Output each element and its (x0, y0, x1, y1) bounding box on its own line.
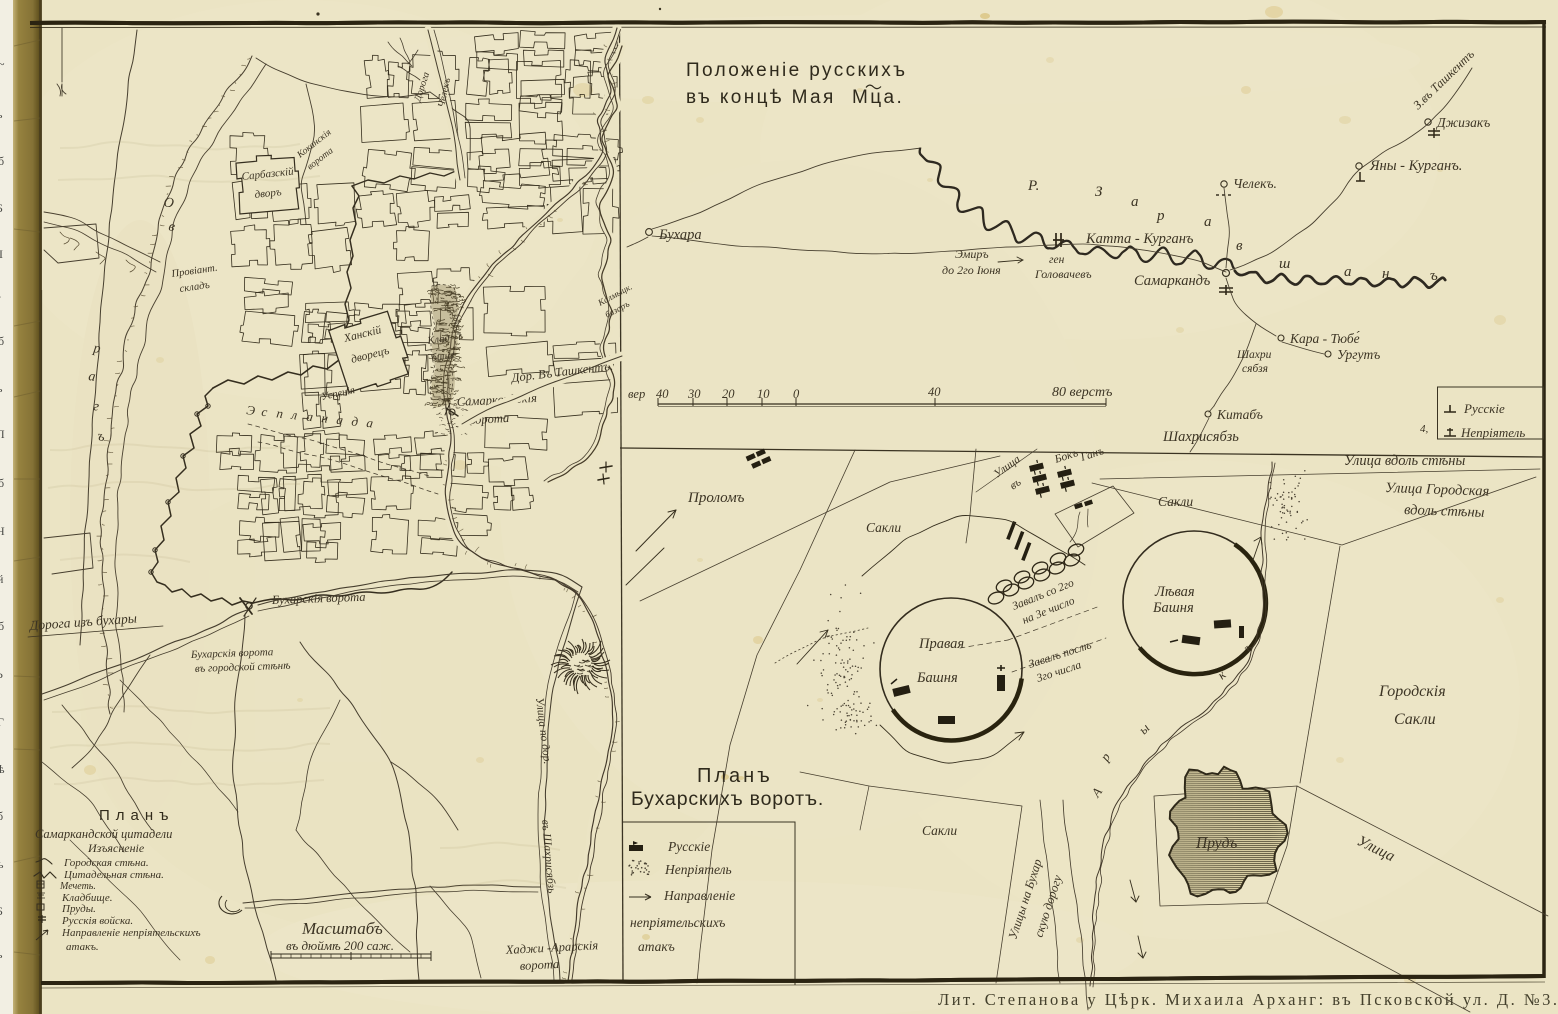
svg-text:ворота: ворота (519, 957, 559, 973)
svg-text:Р.: Р. (1027, 178, 1039, 194)
svg-text:Городскія: Городскія (1378, 683, 1446, 700)
svg-text:0: 0 (793, 387, 800, 401)
svg-text:Самаркандъ: Самаркандъ (1134, 273, 1211, 289)
svg-text:Шахрисябзь: Шахрисябзь (1162, 429, 1239, 445)
svg-text:Шахри: Шахри (1236, 349, 1272, 361)
svg-text:40: 40 (928, 385, 941, 399)
svg-text:до 2го Іюня: до 2го Іюня (942, 263, 1001, 277)
svg-text:р: р (1156, 208, 1165, 224)
svg-text:Планъ: Планъ (99, 807, 175, 824)
svg-text:З: З (1095, 184, 1103, 200)
svg-text:Б: Б (0, 201, 3, 215)
svg-text:Мца.: Мца. (852, 87, 904, 108)
svg-text:~: ~ (0, 57, 5, 71)
svg-text:20: 20 (722, 387, 735, 401)
svg-text:атакъ.: атакъ. (66, 941, 99, 953)
svg-text:30: 30 (687, 387, 701, 401)
svg-text:б: б (0, 154, 4, 168)
svg-text:Катта - Курганъ: Катта - Курганъ (1085, 231, 1194, 247)
svg-text:Направленіе непріятельскихъ: Направленіе непріятельскихъ (61, 927, 201, 939)
svg-text:Челекъ.: Челекъ. (1233, 176, 1277, 191)
svg-text:Сакли: Сакли (866, 520, 901, 535)
svg-text:Цитадельная стѣна.: Цитадельная стѣна. (63, 869, 164, 881)
svg-text:Головачевъ: Головачевъ (1034, 267, 1092, 281)
svg-text:Ургутъ: Ургутъ (1337, 347, 1380, 362)
svg-text:Прудъ: Прудъ (1195, 835, 1237, 852)
svg-text:Яны - Курганъ.: Яны - Курганъ. (1369, 158, 1462, 174)
svg-text:Башня: Башня (916, 670, 958, 686)
svg-text:ѣ: ѣ (0, 762, 5, 776)
svg-text:І: І (0, 247, 3, 261)
svg-text:Проломъ: Проломъ (687, 490, 745, 506)
svg-text:въ дюймѣ 200 саж.: въ дюймѣ 200 саж. (286, 938, 394, 953)
svg-text:а: а (1344, 264, 1352, 280)
svg-text:Правая: Правая (918, 636, 964, 652)
svg-text:-: - (0, 289, 1, 303)
svg-text:й: й (0, 572, 4, 586)
svg-text:Масштабъ: Масштабъ (301, 919, 383, 938)
svg-text:Городская стѣна.: Городская стѣна. (63, 857, 149, 869)
svg-text:П: П (0, 427, 5, 441)
svg-text:Пруды.: Пруды. (61, 903, 96, 915)
svg-text:вер: вер (628, 387, 645, 401)
svg-text:б: б (0, 334, 4, 348)
svg-text:атакъ: атакъ (638, 939, 675, 954)
svg-text:10: 10 (757, 387, 770, 401)
svg-text:в: в (1236, 238, 1243, 254)
svg-text:сябзя: сябзя (1242, 363, 1268, 375)
svg-text:Башня: Башня (1152, 600, 1194, 616)
svg-text:а: а (1131, 194, 1139, 210)
svg-text:въ концѣ Мая: въ концѣ Мая (686, 87, 836, 108)
svg-text:Лит. Степанова у Цѣрк. Мих: Лит. Степанова у Цѣрк. Михаила Арханг: в… (938, 990, 1558, 1009)
svg-text:Русскіе: Русскіе (1463, 401, 1505, 416)
svg-text:80 верстъ: 80 верстъ (1052, 385, 1112, 400)
svg-text:Непріятель: Непріятель (664, 862, 732, 877)
svg-text:Сакли: Сакли (922, 823, 957, 838)
svg-text:Самаркандской цитадели: Самаркандской цитадели (35, 827, 172, 841)
svg-text:ш: ш (1279, 256, 1290, 272)
svg-text:Бухарскихъ воротъ.: Бухарскихъ воротъ. (631, 788, 824, 810)
svg-text:Непріятель: Непріятель (1460, 425, 1525, 440)
svg-text:Русскіе: Русскіе (667, 839, 710, 854)
svg-text:ъ: ъ (1430, 268, 1438, 284)
svg-text:Б: Б (0, 904, 3, 918)
svg-text:б: б (0, 619, 4, 633)
svg-text:4,: 4, (1420, 423, 1429, 435)
svg-text:Кара - Тюбе́: Кара - Тюбе́ (1289, 331, 1361, 346)
svg-text:40: 40 (656, 387, 669, 401)
svg-text:непріятельскихъ: непріятельскихъ (630, 915, 725, 930)
svg-text:н: н (1382, 266, 1389, 282)
svg-text:Джизакъ: Джизакъ (1435, 115, 1490, 130)
svg-text:Лѣвая: Лѣвая (1154, 584, 1195, 600)
svg-text:Изъясненіе: Изъясненіе (87, 841, 145, 855)
svg-text:Мечеть.: Мечеть. (59, 881, 96, 892)
svg-text:Улица вдоль стѣны: Улица вдоль стѣны (1344, 453, 1465, 469)
svg-text:ь: ь (0, 857, 4, 871)
svg-text:вдоль стѣны: вдоль стѣны (1404, 502, 1485, 521)
svg-text:Эмиръ: Эмиръ (955, 247, 989, 261)
svg-text:б: б (0, 809, 3, 823)
svg-text:ген: ген (1049, 254, 1065, 266)
svg-text:Сакли: Сакли (1394, 711, 1436, 728)
svg-text:Г: Г (0, 715, 4, 729)
svg-text:Китабъ: Китабъ (1216, 407, 1263, 422)
svg-text:Планъ: Планъ (697, 765, 773, 787)
svg-text:а: а (1204, 214, 1212, 230)
svg-text:Н: Н (0, 524, 5, 538)
svg-text:б: б (0, 476, 4, 490)
svg-text:Направленіе: Направленіе (663, 888, 735, 903)
svg-text:Русскія войска.: Русскія войска. (61, 915, 133, 927)
svg-text:Сакли: Сакли (1158, 494, 1193, 509)
svg-text:Ь: Ь (0, 667, 3, 681)
svg-text:Положеніе русскихъ: Положеніе русскихъ (686, 60, 907, 81)
